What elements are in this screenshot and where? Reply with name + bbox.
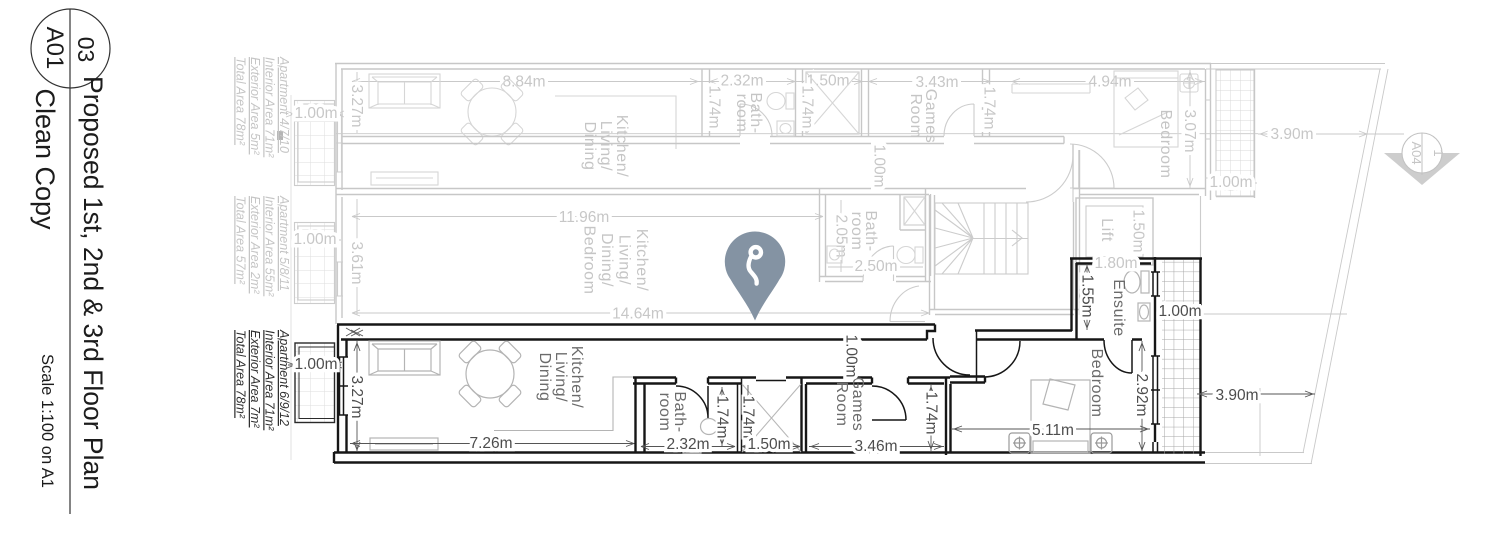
svg-text:Scale 1:100 on A1: Scale 1:100 on A1 — [38, 354, 56, 488]
svg-text:Exterior Area 2m²: Exterior Area 2m² — [248, 196, 262, 294]
svg-text:2.05m: 2.05m — [833, 214, 850, 257]
svg-text:3.90m: 3.90m — [1270, 126, 1313, 143]
svg-text:room: room — [733, 94, 750, 133]
svg-text:2.92m: 2.92m — [1133, 373, 1150, 416]
svg-text:Ensuite: Ensuite — [1110, 279, 1127, 337]
svg-text:1.80m: 1.80m — [1094, 255, 1137, 272]
svg-text:Exterior Area 7m²: Exterior Area 7m² — [248, 330, 262, 428]
svg-text:Bedroom: Bedroom — [581, 225, 598, 294]
svg-text:1.00m: 1.00m — [1209, 174, 1252, 191]
svg-text:2.50m: 2.50m — [854, 258, 897, 275]
svg-text:Interior Area 55m²: Interior Area 55m² — [263, 196, 277, 297]
svg-text:Dining: Dining — [536, 353, 553, 402]
svg-text:Living/: Living/ — [616, 235, 633, 285]
svg-text:1.74m: 1.74m — [981, 86, 998, 129]
svg-text:11.96m: 11.96m — [559, 209, 610, 226]
svg-text:1.74m: 1.74m — [799, 85, 816, 128]
svg-text:Proposed 1st, 2nd & 3rd Floor: Proposed 1st, 2nd & 3rd Floor Plan — [78, 76, 108, 490]
svg-text:3.46m: 3.46m — [854, 438, 897, 455]
svg-text:1.74m: 1.74m — [923, 391, 940, 434]
svg-text:Total Area 78m²: Total Area 78m² — [234, 57, 248, 146]
svg-text:2.32m: 2.32m — [720, 73, 763, 90]
svg-text:Dining: Dining — [581, 122, 598, 171]
svg-text:1.00m: 1.00m — [294, 105, 337, 122]
svg-text:Bedroom: Bedroom — [1157, 109, 1174, 178]
svg-text:3.90m: 3.90m — [1215, 387, 1258, 404]
svg-text:Apartment 6/9/12: Apartment 6/9/12 — [277, 329, 291, 426]
svg-text:1.74m: 1.74m — [706, 85, 723, 128]
svg-text:1.55m: 1.55m — [1079, 274, 1096, 317]
svg-text:Apartment 4/7/10: Apartment 4/7/10 — [277, 56, 291, 153]
svg-text:3.27m: 3.27m — [348, 375, 365, 418]
svg-text:3.27m: 3.27m — [348, 84, 365, 127]
svg-text:1.50m: 1.50m — [1130, 209, 1147, 252]
svg-text:1.00m: 1.00m — [293, 231, 336, 248]
svg-text:1: 1 — [1431, 149, 1446, 156]
svg-text:Kitchen/: Kitchen/ — [633, 229, 650, 292]
svg-text:2.32m: 2.32m — [666, 436, 709, 453]
svg-text:1.50m: 1.50m — [747, 436, 790, 453]
svg-text:Lift: Lift — [1098, 218, 1115, 242]
svg-text:3.07m: 3.07m — [1181, 109, 1198, 152]
svg-text:Total Area 78m²: Total Area 78m² — [234, 330, 248, 419]
svg-text:4.94m: 4.94m — [1088, 74, 1131, 91]
svg-text:Kitchen/: Kitchen/ — [613, 115, 630, 178]
svg-text:1.74m: 1.74m — [714, 395, 731, 438]
svg-text:14.64m: 14.64m — [612, 306, 664, 323]
svg-text:Games: Games — [849, 377, 866, 432]
svg-text:03: 03 — [73, 37, 99, 63]
svg-text:8.84m: 8.84m — [502, 74, 545, 91]
svg-text:Exterior Area 5m²: Exterior Area 5m² — [248, 57, 262, 155]
svg-text:Living/: Living/ — [552, 352, 569, 402]
svg-text:1.00m: 1.00m — [871, 144, 888, 187]
svg-text:Total Area 57m²: Total Area 57m² — [234, 196, 248, 285]
svg-text:3.61m: 3.61m — [348, 241, 365, 284]
svg-text:Interior Area 71m²: Interior Area 71m² — [263, 57, 277, 158]
svg-text:Room: Room — [907, 93, 924, 138]
svg-text:room: room — [848, 212, 865, 251]
svg-text:Kitchen/: Kitchen/ — [568, 346, 585, 409]
svg-text:Clean Copy: Clean Copy — [30, 88, 60, 230]
svg-text:1.00m: 1.00m — [294, 356, 337, 373]
svg-text:Bedroom: Bedroom — [1088, 348, 1105, 417]
svg-text:Room: Room — [833, 381, 850, 426]
svg-text:1.00m: 1.00m — [843, 334, 860, 377]
svg-text:1.74m: 1.74m — [740, 395, 757, 438]
svg-text:A01: A01 — [41, 27, 68, 70]
svg-text:A04: A04 — [1409, 141, 1424, 164]
svg-text:Apartment 5/8/11: Apartment 5/8/11 — [277, 195, 291, 291]
svg-text:Living/: Living/ — [597, 121, 614, 171]
svg-text:room: room — [656, 393, 673, 432]
svg-text:1.00m: 1.00m — [1158, 303, 1201, 320]
svg-text:7.26m: 7.26m — [469, 435, 512, 452]
svg-text:5.11m: 5.11m — [1032, 422, 1074, 439]
svg-text:Interior Area 71m²: Interior Area 71m² — [263, 330, 277, 431]
svg-text:Dining/: Dining/ — [598, 233, 615, 287]
